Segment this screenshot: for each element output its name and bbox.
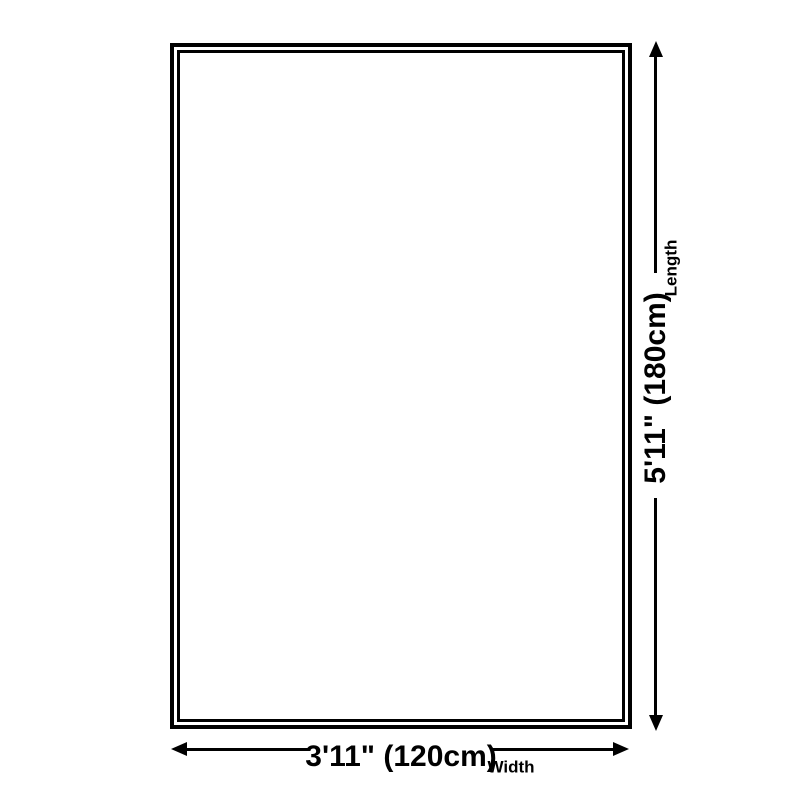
length-dimension-label: Length [663,240,680,297]
width-dimension-value: 3'11" (120cm) [305,742,496,772]
arrow-right-icon [613,742,629,756]
width-dimension-line-left [186,748,308,751]
rug-outline-outer [170,43,632,729]
dimension-diagram: Length 5'11" (180cm) 3'11" (120cm) Width [0,0,800,800]
length-dimension-line-bottom [654,498,657,717]
rug-outline-inner [177,50,625,722]
width-dimension-label: Width [487,759,534,776]
length-dimension-line-top [654,55,657,273]
width-dimension-line-right [491,748,614,751]
arrow-left-icon [171,742,187,756]
length-dimension-value: 5'11" (180cm) [641,292,671,483]
arrow-down-icon [649,715,663,731]
